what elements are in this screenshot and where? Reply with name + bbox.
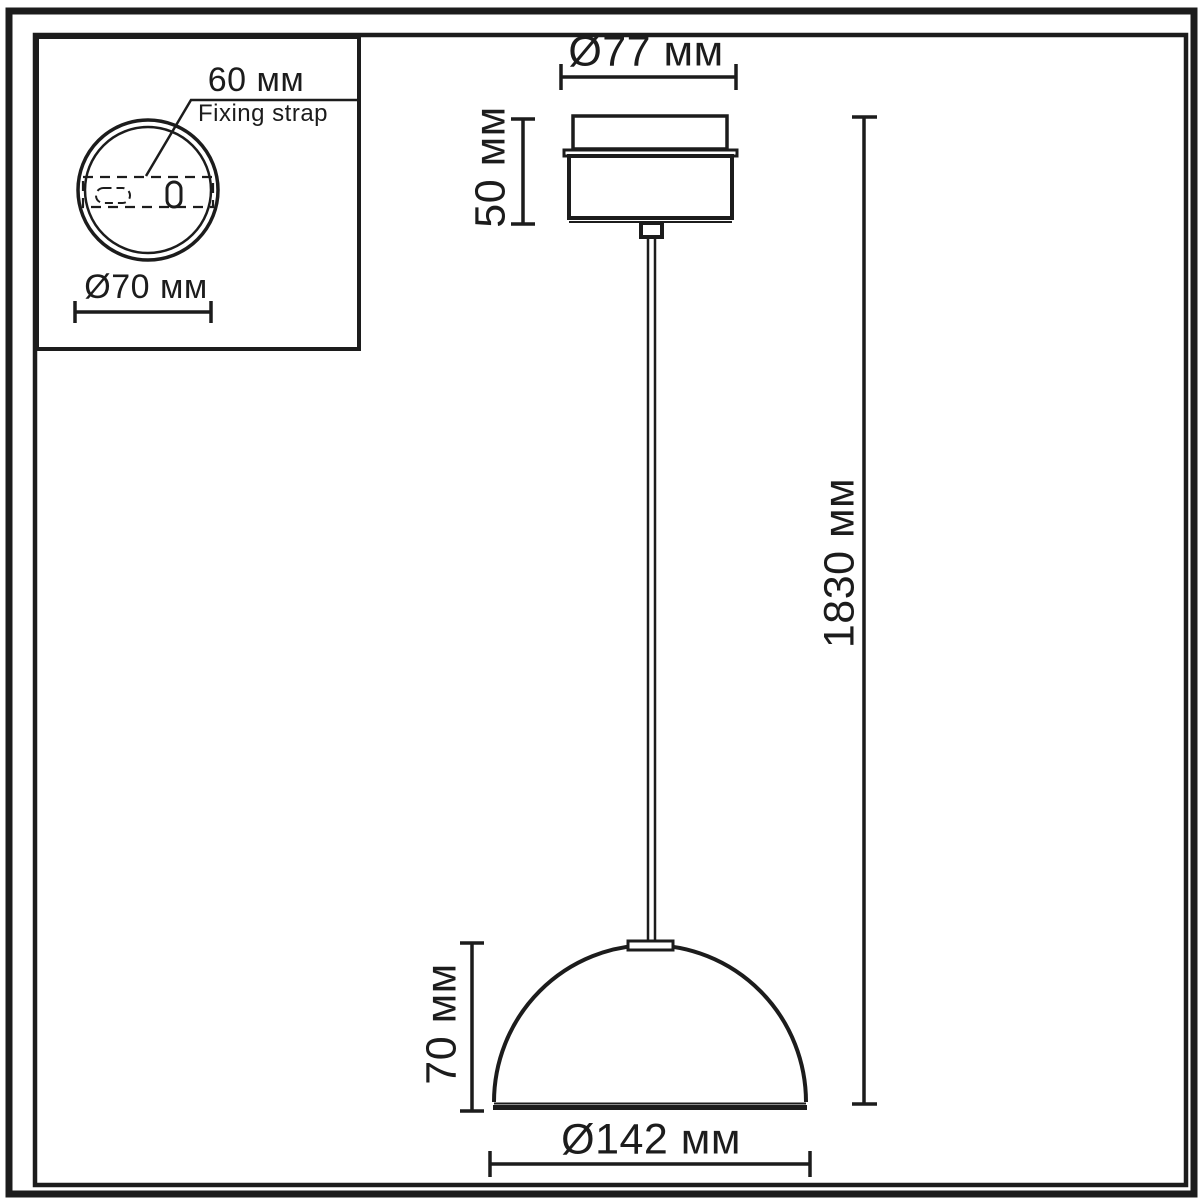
canopy-height-label: 50 мм <box>470 106 513 227</box>
overall-height-label: 1830 мм <box>819 478 862 648</box>
strap-slot <box>96 188 130 203</box>
canopy-diameter-label: Ø77 мм <box>568 31 723 74</box>
shade-dome <box>493 941 807 1108</box>
canopy-height-dimension <box>511 119 535 224</box>
shade-collar <box>628 941 673 950</box>
dimensional-drawing-page: 60 мм Fixing strap Ø70 мм Ø77 мм 50 мм 1… <box>0 0 1200 1200</box>
base-diameter-label: Ø70 мм <box>84 270 207 304</box>
fixing-strap-outline <box>83 177 213 207</box>
suspension-cable <box>648 237 655 946</box>
shade-dome-outline <box>494 945 806 1102</box>
cord-grip <box>641 223 662 237</box>
fixing-strap-label: Fixing strap <box>198 102 328 126</box>
technical-drawing-canvas <box>0 0 1200 1200</box>
mounting-hole <box>167 182 181 207</box>
shade-diameter-label: Ø142 мм <box>561 1119 741 1162</box>
outer-border <box>9 11 1194 1194</box>
canopy-side-view <box>564 116 737 237</box>
strap-width-label: 60 мм <box>208 63 305 97</box>
shade-height-label: 70 мм <box>421 963 464 1084</box>
